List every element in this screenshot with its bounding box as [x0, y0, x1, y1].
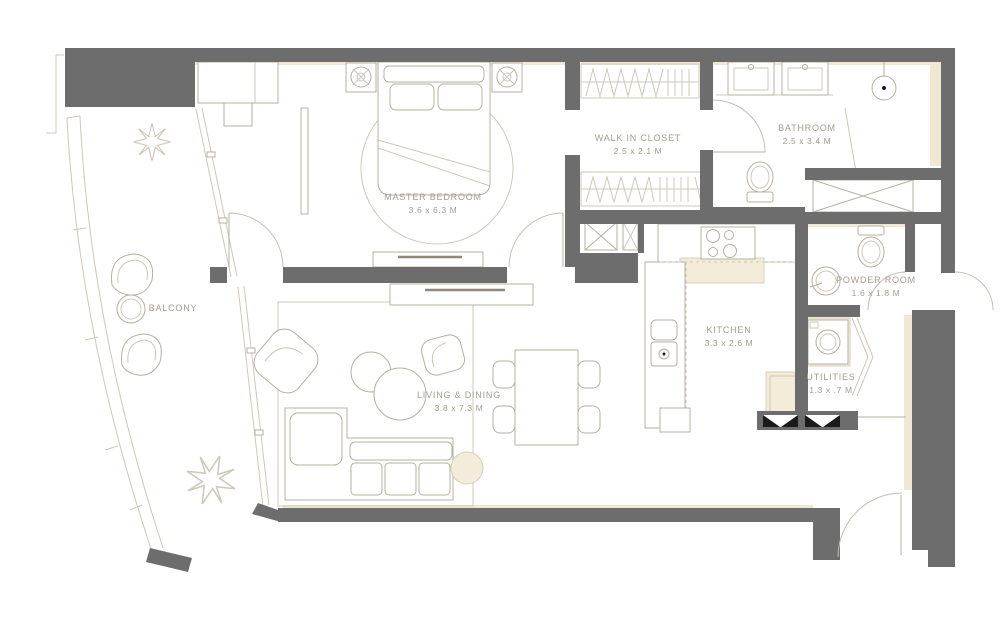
- sink-icon: [651, 320, 677, 340]
- wall-panel: [301, 108, 308, 214]
- wall: [65, 48, 195, 107]
- room-label-balcony: BALCONY: [149, 303, 198, 313]
- wardrobe: [198, 62, 278, 103]
- plant-icon: [178, 447, 243, 512]
- bifold-door: [852, 318, 873, 396]
- dining-chair: [578, 361, 600, 388]
- room-dims-living-dining: 3.8 x 7.3 M: [435, 403, 484, 413]
- toilet-icon: [858, 226, 884, 235]
- room-dims-walk-in-closet: 2.5 x 2.1 M: [614, 146, 663, 156]
- room-label-kitchen: KITCHEN: [706, 325, 751, 335]
- washing-machine-icon: [808, 320, 848, 364]
- room-label-bathroom: BATHROOM: [778, 123, 836, 133]
- room-dims-powder-room: 1.6 x 1.8 M: [852, 288, 901, 298]
- entry-threshold: [757, 411, 858, 430]
- room-label-master-bedroom: MASTER BEDROOM: [384, 192, 482, 202]
- dining-chair: [578, 406, 600, 433]
- dining-chair: [493, 406, 515, 433]
- living-tv-console: [390, 284, 533, 305]
- shower: [813, 180, 913, 212]
- room-dims-kitchen: 3.3 x 2.6 M: [705, 338, 754, 348]
- corridor-door-arc: [509, 213, 563, 267]
- dining-table: [515, 350, 578, 445]
- bedroom-door-arc: [229, 213, 283, 267]
- room-dims-master-bedroom: 3.6 x 6.3 M: [409, 205, 458, 215]
- living-balcony-window: [238, 286, 269, 507]
- side-table: [451, 452, 483, 484]
- kitchen-end-cabinet: [660, 408, 690, 432]
- plant-icon: [133, 123, 170, 160]
- dining-chair: [493, 361, 515, 388]
- armchair: [248, 323, 324, 399]
- armchair: [419, 332, 467, 377]
- room-dims-bathroom: 2.5 x 3.4 M: [783, 136, 832, 146]
- service-door-arc: [955, 272, 993, 310]
- bathroom-door-arc: [713, 100, 765, 152]
- bedroom-balcony-window: [196, 108, 237, 277]
- floor-plan: MASTER BEDROOM 3.6 x 6.3 M WALK IN CLOSE…: [0, 0, 1000, 634]
- bedroom-tv-console: [373, 252, 483, 267]
- room-label-utilities: UTILITIES: [806, 372, 855, 382]
- room-label-walk-in-closet: WALK IN CLOSET: [595, 133, 681, 143]
- dresser-stool: [224, 103, 252, 126]
- dimension-lines: [46, 55, 64, 133]
- master-bedroom: [198, 62, 522, 267]
- room-dims-utilities: 1.3 x .7 M: [809, 385, 852, 395]
- sofa: [285, 408, 453, 500]
- utilities: [806, 318, 906, 417]
- floor-plan-drawing: MASTER BEDROOM 3.6 x 6.3 M WALK IN CLOSE…: [0, 0, 1000, 634]
- room-label-powder-room: POWDER ROOM: [836, 275, 916, 285]
- room-label-living-dining: LIVING & DINING: [417, 390, 501, 400]
- service-shafts: [585, 222, 638, 250]
- entrance-door-arc: [838, 493, 902, 557]
